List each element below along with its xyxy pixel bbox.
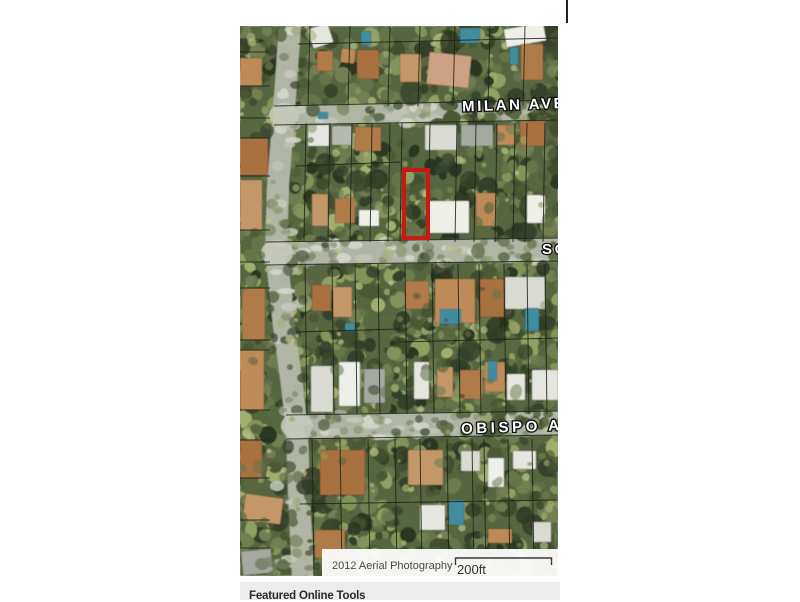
svg-text:MILAN AVE: MILAN AVE [462,95,558,116]
svg-text:200ft: 200ft [457,562,486,576]
svg-text:SOROLLA: SOROLLA [542,241,558,258]
svg-text:2012 Aerial Photography: 2012 Aerial Photography [332,560,453,572]
svg-text:OBISPO AVE: OBISPO AVE [461,416,558,437]
